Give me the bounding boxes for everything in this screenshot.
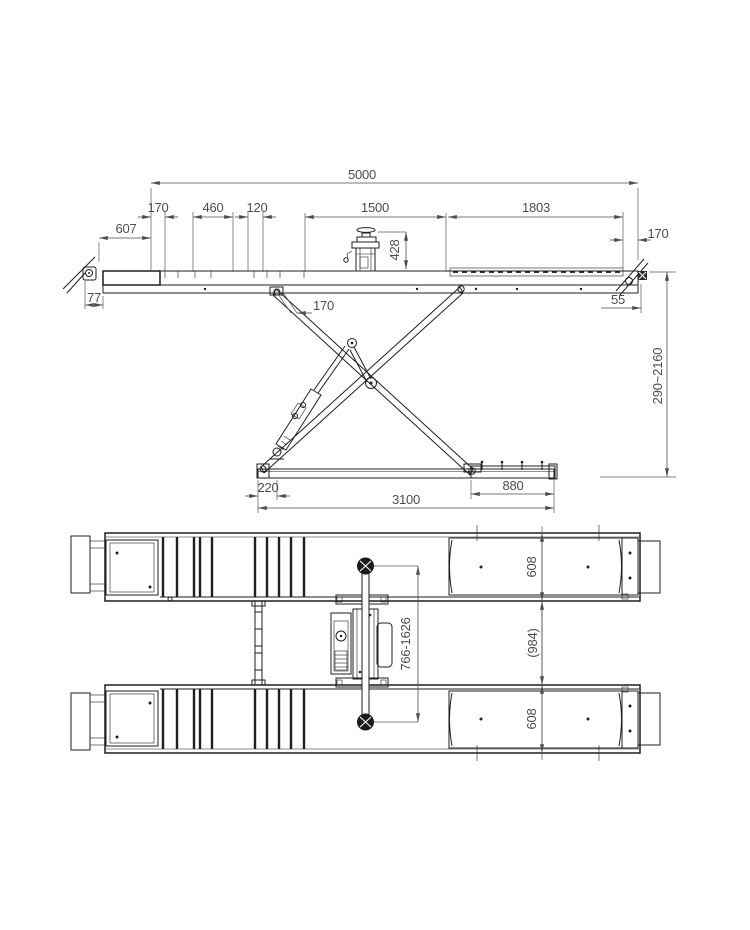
dim-lift-height-range: 290~2160 xyxy=(650,348,665,405)
pump-lever xyxy=(347,251,352,259)
base-frame xyxy=(257,461,557,479)
right-ramp-flap xyxy=(616,259,648,295)
drawing-canvas: 5000 170 460 120 1500 1803 607 170 428 xyxy=(0,0,750,930)
left-ramp-flap xyxy=(63,257,96,293)
side-view-dimensions: 5000 170 460 120 1500 1803 607 170 428 xyxy=(85,167,676,513)
dim-front-platform-width: 608 xyxy=(524,556,539,577)
scissor-lift-drawing: 5000 170 460 120 1500 1803 607 170 428 xyxy=(0,0,750,930)
dim-rear-platform-width: 608 xyxy=(524,708,539,729)
dim-seg-1803: 1803 xyxy=(522,200,550,215)
approach-ramp-side xyxy=(103,271,160,285)
dim-seg-170-left: 170 xyxy=(147,200,168,215)
end-extension xyxy=(638,541,660,593)
dim-right-edge-55: 55 xyxy=(611,292,625,307)
dim-base-end-220: 220 xyxy=(257,480,278,495)
lifting-pad-bar xyxy=(358,558,374,730)
ramp-treads xyxy=(163,537,304,597)
dim-bracket-offset: 170 xyxy=(313,298,334,313)
wheel-stop xyxy=(71,536,90,593)
platform-deck xyxy=(103,268,638,293)
dim-seg-1500: 1500 xyxy=(361,200,389,215)
deck-division-ticks xyxy=(165,271,304,278)
side-view: 5000 170 460 120 1500 1803 607 170 428 xyxy=(63,167,676,513)
dim-seg-460: 460 xyxy=(202,200,223,215)
ramp-treads xyxy=(163,689,304,749)
dim-power-unit-height: 428 xyxy=(387,239,402,260)
power-unit xyxy=(344,228,379,271)
plan-view: 608 (984) 608 766-1626 xyxy=(71,525,660,761)
dim-base-length-3100: 3100 xyxy=(392,492,420,507)
dim-left-overhang: 607 xyxy=(115,221,136,236)
dim-seg-170-right: 170 xyxy=(647,226,668,241)
scissor-mechanism xyxy=(260,286,481,475)
side-tab xyxy=(377,623,392,667)
dim-lifting-pad-range: 766-1626 xyxy=(398,617,413,670)
cross-tube xyxy=(252,601,265,685)
dim-total-length: 5000 xyxy=(348,167,376,182)
dim-inner-track-width: (984) xyxy=(525,628,540,657)
end-extension xyxy=(638,693,660,745)
dim-seg-120: 120 xyxy=(246,200,267,215)
dim-ramp-thickness: 77 xyxy=(87,290,101,305)
dim-base-pad-880: 880 xyxy=(502,478,523,493)
wheel-stop xyxy=(71,693,90,750)
plan-view-dimensions: 608 (984) 608 766-1626 xyxy=(374,526,542,760)
cover-plate xyxy=(106,691,158,746)
hydraulic-cylinder xyxy=(270,339,371,460)
